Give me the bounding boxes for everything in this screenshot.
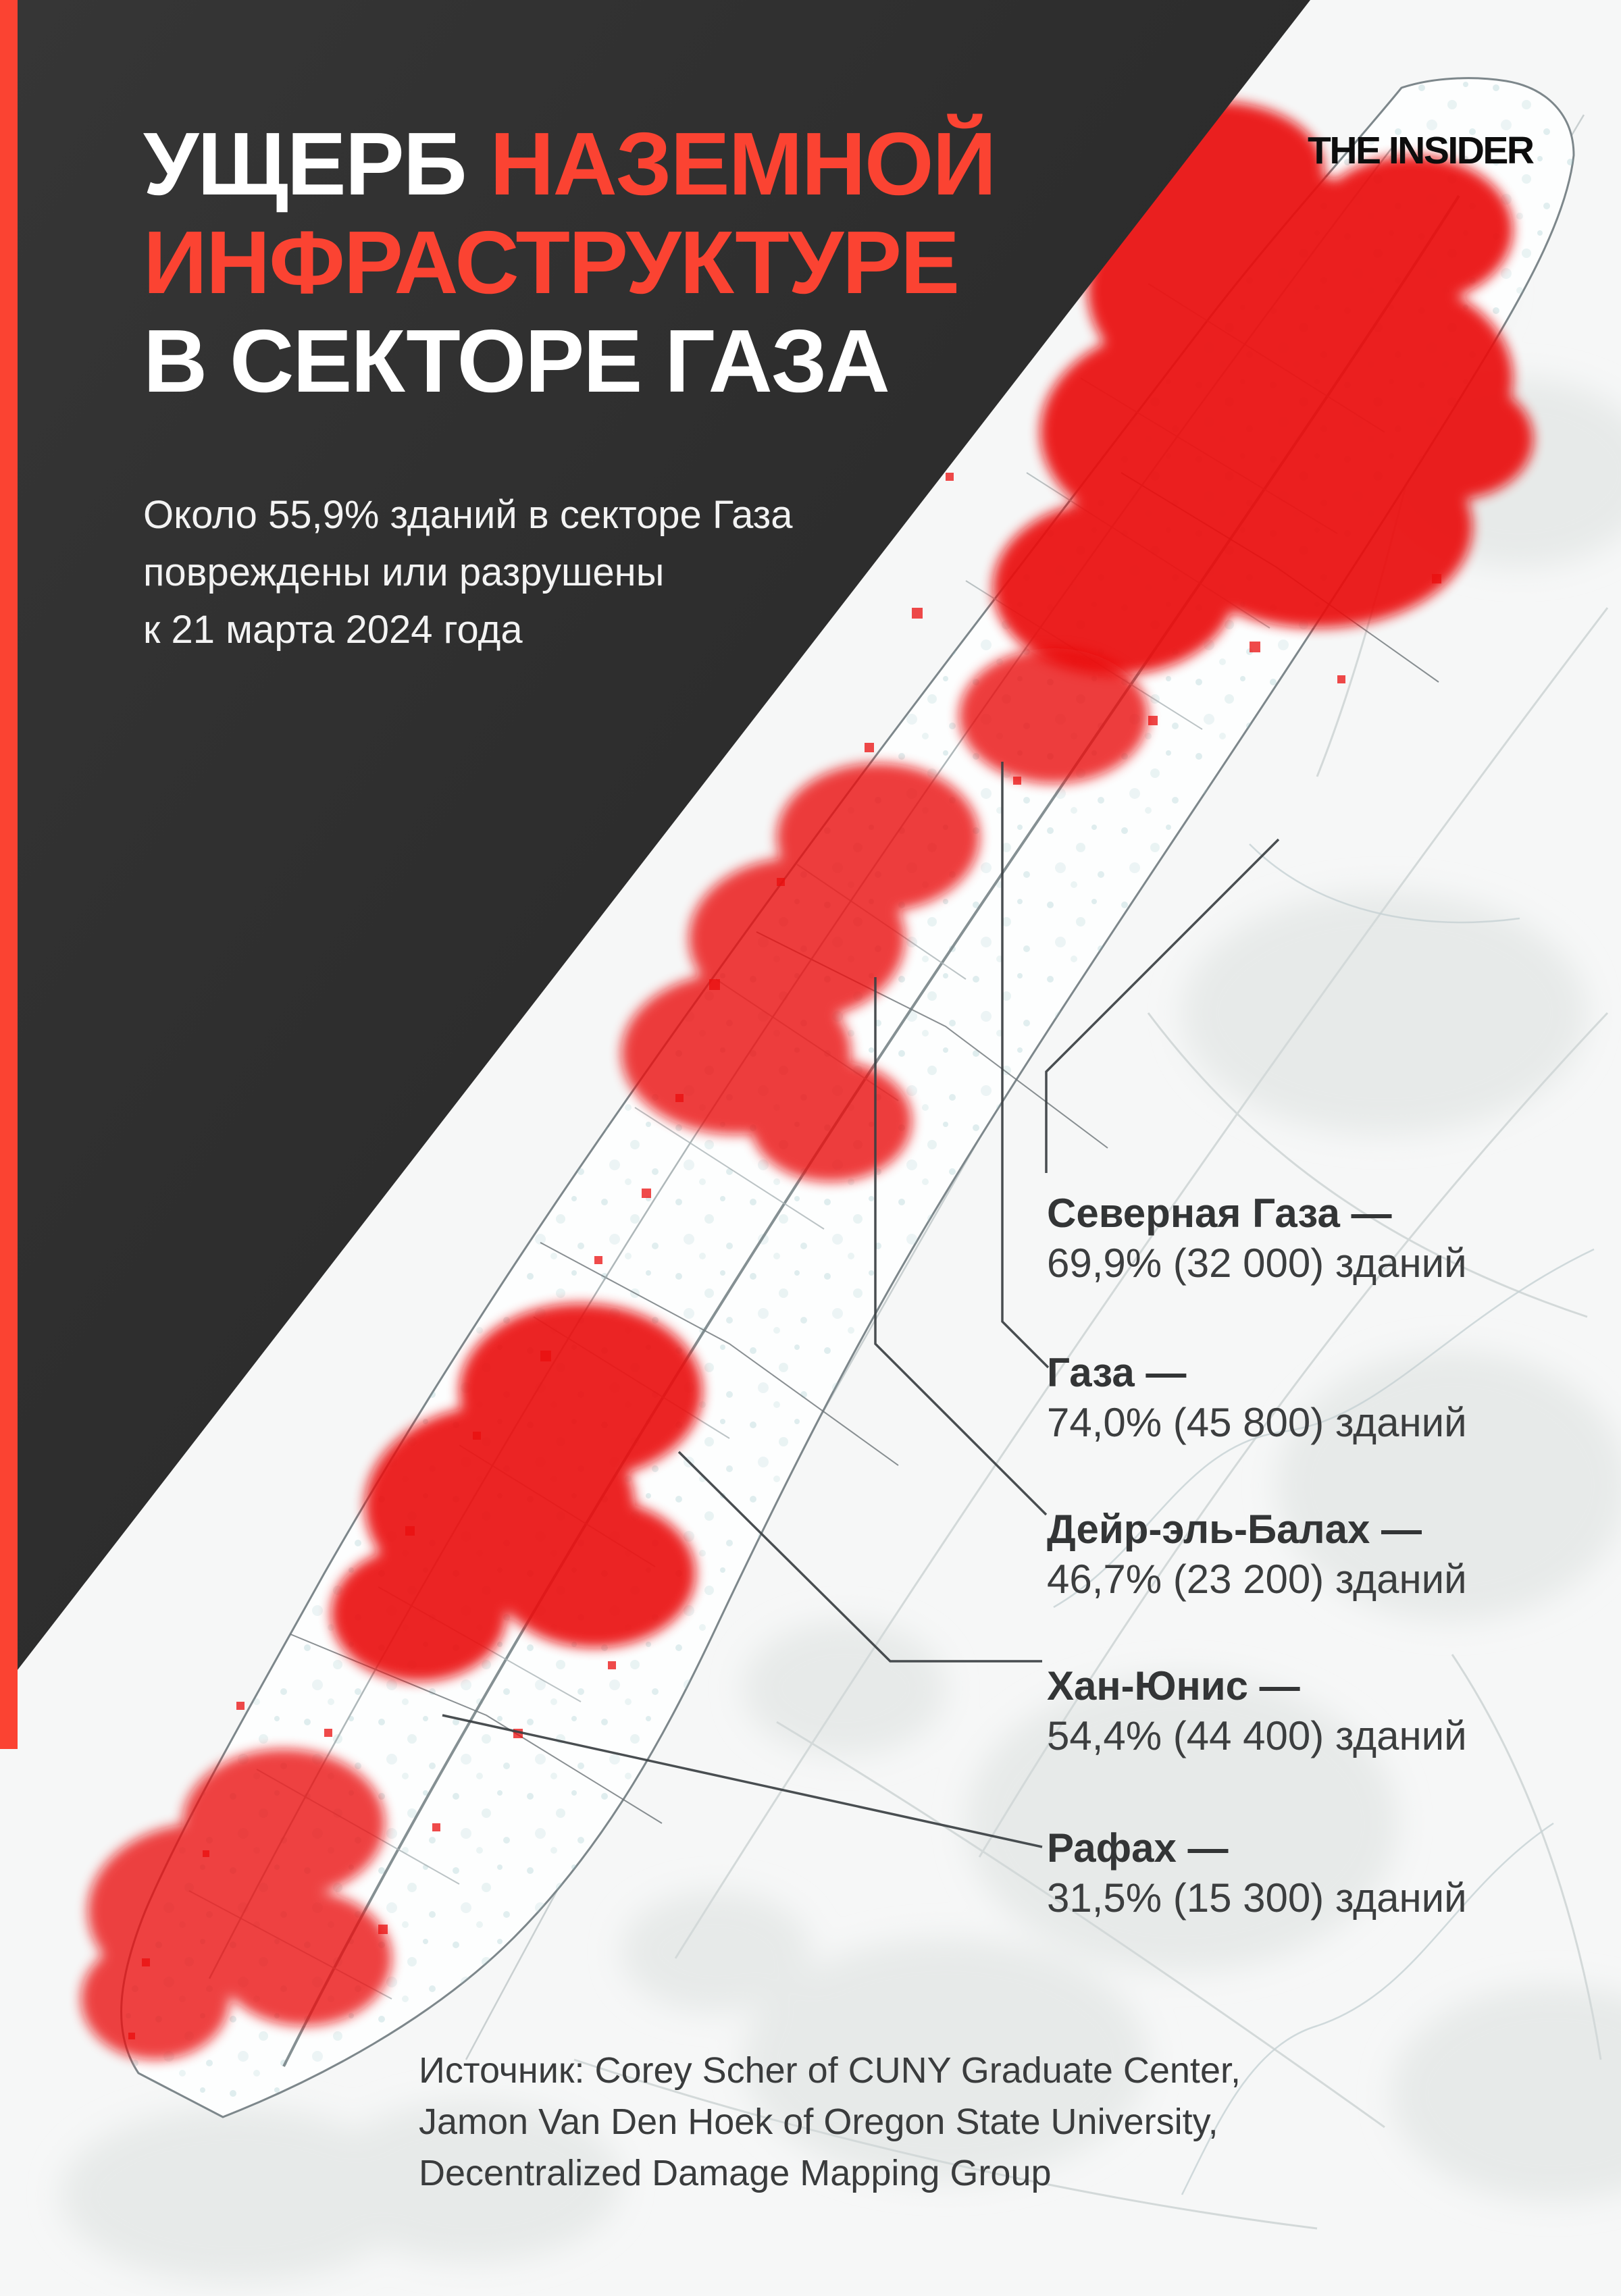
page-title-line-2: ИНФРАСТРУКТУРЕ [143, 213, 995, 312]
region-label-north-gaza: Северная Газа — 69,9% (32 000) зданий [1047, 1189, 1467, 1288]
subtitle: Около 55,9% зданий в секторе Газа повреж… [143, 486, 995, 658]
title-word-red: НАЗЕМНОЙ [490, 114, 995, 213]
region-label-khan-younis: Хан-Юнис — 54,4% (44 400) зданий [1047, 1661, 1467, 1761]
infographic-page: УЩЕРБНАЗЕМНОЙ ИНФРАСТРУКТУРЕ В СЕКТОРЕ Г… [0, 0, 1621, 2296]
title-word-white: УЩЕРБ [143, 114, 466, 213]
brand-logo: THE INSIDER [1308, 128, 1533, 173]
region-label-rafah: Рафах — 31,5% (15 300) зданий [1047, 1823, 1467, 1923]
region-label-deir-al-balah: Дейр-эль-Балах — 46,7% (23 200) зданий [1047, 1505, 1467, 1604]
region-name: Дейр-эль-Балах — [1047, 1505, 1467, 1555]
page-title-line-1: УЩЕРБНАЗЕМНОЙ [143, 115, 995, 213]
page-title-line-3: В СЕКТОРЕ ГАЗА [143, 312, 995, 411]
region-label-gaza: Газа — 74,0% (45 800) зданий [1047, 1348, 1467, 1448]
region-name: Рафах — [1047, 1823, 1467, 1873]
region-name: Хан-Юнис — [1047, 1661, 1467, 1711]
region-stat: 54,4% (44 400) зданий [1047, 1711, 1467, 1761]
source-credit: Источник: Corey Scher of CUNY Graduate C… [419, 2045, 1241, 2199]
header: УЩЕРБНАЗЕМНОЙ ИНФРАСТРУКТУРЕ В СЕКТОРЕ Г… [143, 115, 995, 658]
accent-bar [0, 0, 18, 1749]
region-stat: 69,9% (32 000) зданий [1047, 1238, 1467, 1288]
region-name: Газа — [1047, 1348, 1467, 1398]
region-stat: 31,5% (15 300) зданий [1047, 1873, 1467, 1923]
region-stat: 46,7% (23 200) зданий [1047, 1555, 1467, 1604]
region-stat: 74,0% (45 800) зданий [1047, 1398, 1467, 1448]
region-name: Северная Газа — [1047, 1189, 1467, 1238]
